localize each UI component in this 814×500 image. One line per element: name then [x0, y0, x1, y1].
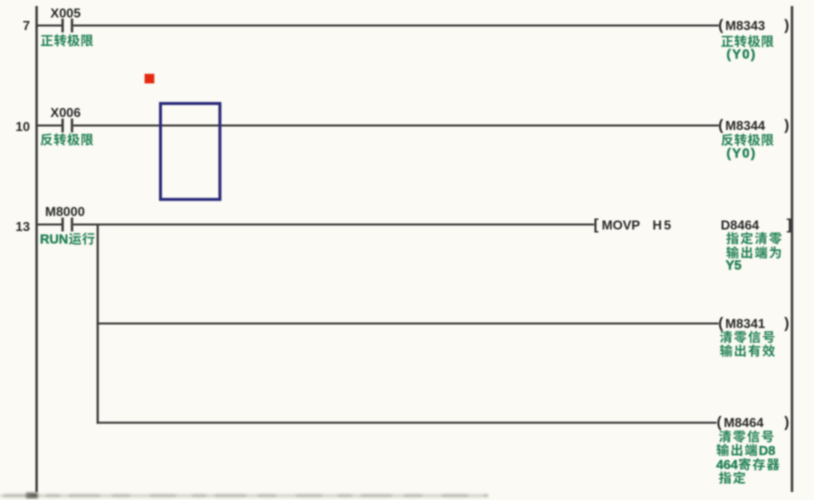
- svg-text:RUN: RUN: [40, 232, 68, 247]
- svg-text:]: ]: [787, 217, 792, 234]
- svg-text:13: 13: [16, 219, 30, 234]
- svg-text:): ): [784, 17, 789, 34]
- svg-text:M8344: M8344: [725, 118, 766, 133]
- svg-text:M8343: M8343: [725, 18, 765, 33]
- svg-text:[: [: [594, 217, 599, 234]
- svg-text:(: (: [718, 315, 723, 332]
- svg-text:H5: H5: [653, 217, 674, 232]
- svg-text:Y5: Y5: [726, 258, 742, 273]
- svg-text:D8464: D8464: [721, 217, 760, 232]
- svg-text:M8464: M8464: [724, 415, 765, 430]
- svg-text:10: 10: [16, 119, 30, 134]
- svg-text:M8341: M8341: [725, 316, 765, 331]
- svg-text:): ): [784, 414, 789, 431]
- svg-text:(: (: [717, 414, 722, 431]
- svg-text:7: 7: [23, 18, 30, 33]
- svg-text:X005: X005: [50, 5, 80, 20]
- svg-text:(Y0): (Y0): [727, 145, 757, 160]
- svg-text:(: (: [718, 17, 723, 34]
- svg-text:D8: D8: [759, 443, 776, 458]
- svg-text:): ): [784, 117, 789, 134]
- svg-text:): ): [784, 315, 789, 332]
- svg-text:(: (: [718, 117, 723, 134]
- svg-text:M8000: M8000: [45, 204, 85, 219]
- svg-text:MOVP: MOVP: [602, 217, 641, 232]
- svg-text:X006: X006: [50, 105, 80, 120]
- svg-text:(Y0): (Y0): [727, 46, 757, 61]
- svg-text:464: 464: [716, 457, 738, 472]
